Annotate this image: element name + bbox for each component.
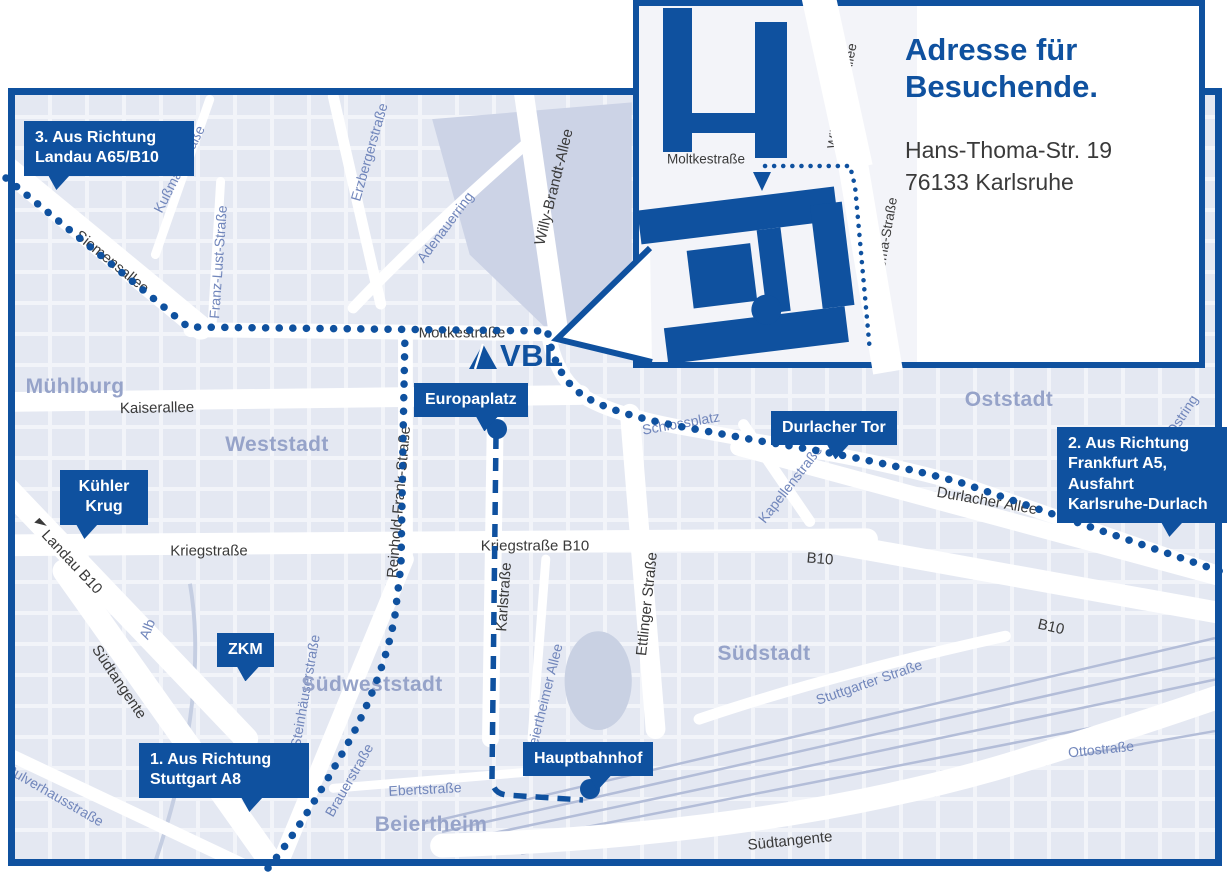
vbl-logo: VBL [468, 338, 564, 374]
district-label: Oststadt [965, 388, 1053, 412]
street-label: Pulverhausstraße [8, 761, 107, 830]
district-label: Südweststadt [301, 673, 442, 697]
street-label: Kaiserallee [120, 399, 195, 417]
inset-building-h-bar [692, 113, 755, 133]
callout-europaplatz-text: Europaplatz [425, 391, 517, 408]
street-label: Willy-Brandt-Allee [531, 127, 576, 247]
callout-zkm: ZKM [217, 633, 274, 667]
vbl-logo-text: VBL [500, 338, 564, 374]
callout-zkm-text: ZKM [228, 641, 263, 658]
callout-route1-text: 1. Aus Richtung Stuttgart A8 [150, 751, 271, 788]
callout-hauptbahnhof: Hauptbahnhof [523, 742, 653, 776]
callout-route3-text: 3. Aus Richtung Landau A65/B10 [35, 129, 159, 166]
street-label: Kriegstraße B10 [481, 538, 589, 555]
street-label: Südtangente [88, 642, 150, 722]
street-label: Ettlinger Straße [633, 551, 661, 656]
vbl-logo-triangle-icon [468, 343, 498, 370]
street-label: Siemensallee [72, 227, 153, 297]
street-label: Kapellenstraße [755, 442, 826, 526]
street-label: Adenauerring [413, 189, 476, 266]
inset-building-h-left [663, 8, 692, 152]
callout-durlacher-tor-text: Durlacher Tor [782, 419, 886, 436]
district-label: Weststadt [225, 433, 329, 457]
street-label: Kriegstraße [170, 543, 248, 560]
street-label: Karlstraße [493, 562, 515, 632]
callout-europaplatz: Europaplatz [414, 383, 528, 417]
street-label: Durlacher Allee [935, 484, 1038, 518]
inset-street-label: Moltkestraße [667, 152, 745, 167]
vbl-directions-map: { "inset": { "title": "Adresse für\nBesu… [0, 0, 1230, 874]
street-label: Erzbergerstraße [347, 101, 390, 203]
street-label: Schlossplatz [641, 408, 721, 437]
callout-route2-text: 2. Aus Richtung Frankfurt A5, Ausfahrt K… [1068, 435, 1208, 513]
inset-address: Hans-Thoma-Str. 19 76133 Karlsruhe [905, 134, 1112, 198]
street-label: Ottostraße [1067, 738, 1134, 761]
callout-route1: 1. Aus Richtung Stuttgart A8 [139, 743, 309, 798]
district-label: Südstadt [717, 642, 810, 666]
street-label: Landau B10 [28, 516, 105, 597]
callout-kuehler-krug: Kühler Krug [60, 470, 148, 525]
street-label: Franz-Lust-Straße [206, 205, 230, 319]
callout-route2: 2. Aus Richtung Frankfurt A5, Ausfahrt K… [1057, 427, 1227, 523]
callout-hauptbahnhof-text: Hauptbahnhof [534, 750, 642, 767]
inset-building-h-right [755, 22, 787, 158]
callout-kuehler-krug-text: Kühler Krug [79, 478, 130, 515]
district-label: Beiertheim [375, 813, 488, 837]
street-label: Reinhold-Frank-Straße [384, 425, 414, 578]
street-label: B10 [806, 549, 834, 568]
street-label: Alb [136, 617, 158, 642]
street-label: B10 [1036, 616, 1066, 639]
street-label: Brauerstraße [322, 741, 377, 820]
street-label: Ebertstraße [388, 779, 462, 799]
inset-panel: Moltkestraße Willy-Brandt-Allee Hans-Tho… [633, 0, 1205, 368]
street-label: Südtangente [747, 828, 833, 854]
street-label: Beiertheimer Allee [522, 642, 565, 756]
callout-durlacher-tor: Durlacher Tor [771, 411, 897, 445]
inset-title: Adresse für Besuchende. [905, 32, 1098, 105]
callout-route3: 3. Aus Richtung Landau A65/B10 [24, 121, 194, 176]
street-label: Stuttgarter Straße [814, 656, 924, 707]
district-label: Mühlburg [26, 375, 125, 399]
